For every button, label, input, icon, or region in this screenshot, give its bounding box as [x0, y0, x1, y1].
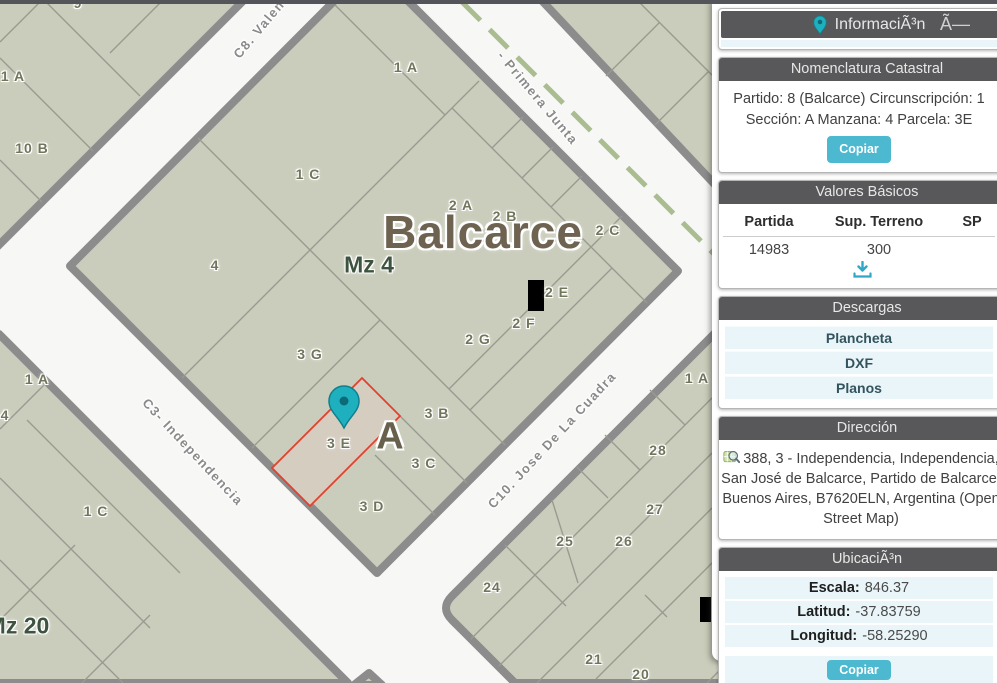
descargas-list: PlanchetaDXFPlanos [719, 320, 997, 408]
panel-descargas: Descargas PlanchetaDXFPlanos [718, 296, 997, 409]
direccion-body: 388, 3 - Independencia, Independencia, S… [719, 440, 997, 539]
info-row: Longitud:-58.25290 [725, 625, 993, 647]
valores-row: 14983300 [723, 242, 997, 258]
copy-ubicacion-button[interactable]: Copiar [827, 660, 891, 680]
nomenclatura-line1: Partido: 8 (Balcarce) Circunscripción: 1 [719, 89, 997, 110]
table-cell: Partida [723, 214, 815, 230]
download-icon[interactable] [853, 261, 872, 278]
app-window: 91 A10 B1 A1 C2 A2 B2 C42 E2 F2 G3 G3 B3… [0, 0, 997, 683]
panel-direccion: Dirección 388, 3 - Independencia, Indepe… [718, 416, 997, 540]
valores-column-headers: PartidaSup. TerrenoSP [723, 210, 997, 236]
nomenclatura-body: Partido: 8 (Balcarce) Circunscripción: 1… [719, 81, 997, 172]
panel-ubicacion: UbicaciÃ³n Escala:846.37Latitud:-37.8375… [718, 547, 997, 683]
nomenclatura-header: Nomenclatura Catastral [719, 58, 997, 81]
panel-informacion: InformaciÃ³n Ã— [718, 8, 997, 50]
panel-valores: Valores Básicos PartidaSup. TerrenoSP 14… [718, 180, 997, 289]
close-icon[interactable]: Ã— [940, 11, 970, 38]
download-item[interactable]: Planos [725, 376, 993, 399]
copy-nomenclatura-button[interactable]: Copiar [827, 136, 891, 163]
informacion-title: InformaciÃ³n [835, 11, 926, 38]
info-row: Escala:846.37 [725, 577, 993, 599]
row-label: Escala: [809, 580, 860, 596]
download-item[interactable]: Plancheta [725, 326, 993, 349]
descargas-header: Descargas [719, 297, 997, 320]
table-cell: 14983 [723, 242, 815, 258]
osm-map-icon [723, 449, 740, 466]
ubicacion-copy-row: Copiar [725, 656, 993, 683]
table-cell: Sup. Terreno [815, 214, 943, 230]
row-value: -58.25290 [862, 628, 927, 644]
informacion-header: InformaciÃ³n Ã— [721, 11, 997, 38]
info-sidebar: InformaciÃ³n Ã— Nomenclatura Catastral P… [712, 0, 997, 661]
ubicacion-rows: Escala:846.37Latitud:-37.83759Longitud:-… [719, 571, 997, 656]
valores-download [723, 258, 997, 282]
row-label: Longitud: [790, 628, 857, 644]
table-cell: SP [943, 214, 997, 230]
ubicacion-header: UbicaciÃ³n [719, 548, 997, 571]
info-row: Latitud:-37.83759 [725, 601, 993, 623]
valores-header: Valores Básicos [719, 181, 997, 204]
panel-nomenclatura: Nomenclatura Catastral Partido: 8 (Balca… [718, 57, 997, 173]
informacion-body-strip [721, 40, 997, 47]
download-item[interactable]: DXF [725, 351, 993, 374]
top-edge-bar [0, 0, 997, 4]
table-cell [943, 242, 997, 258]
row-label: Latitud: [797, 604, 850, 620]
valores-separator [723, 236, 995, 237]
table-cell: 300 [815, 242, 943, 258]
row-value: 846.37 [865, 580, 909, 596]
direccion-text: 388, 3 - Independencia, Independencia, S… [721, 451, 997, 527]
nomenclatura-line2: Sección: A Manzana: 4 Parcela: 3E [719, 110, 997, 131]
valores-table: PartidaSup. TerrenoSP 14983300 [719, 204, 997, 288]
direccion-header: Dirección [719, 417, 997, 440]
row-value: -37.83759 [855, 604, 920, 620]
map-pin-icon [813, 15, 827, 35]
